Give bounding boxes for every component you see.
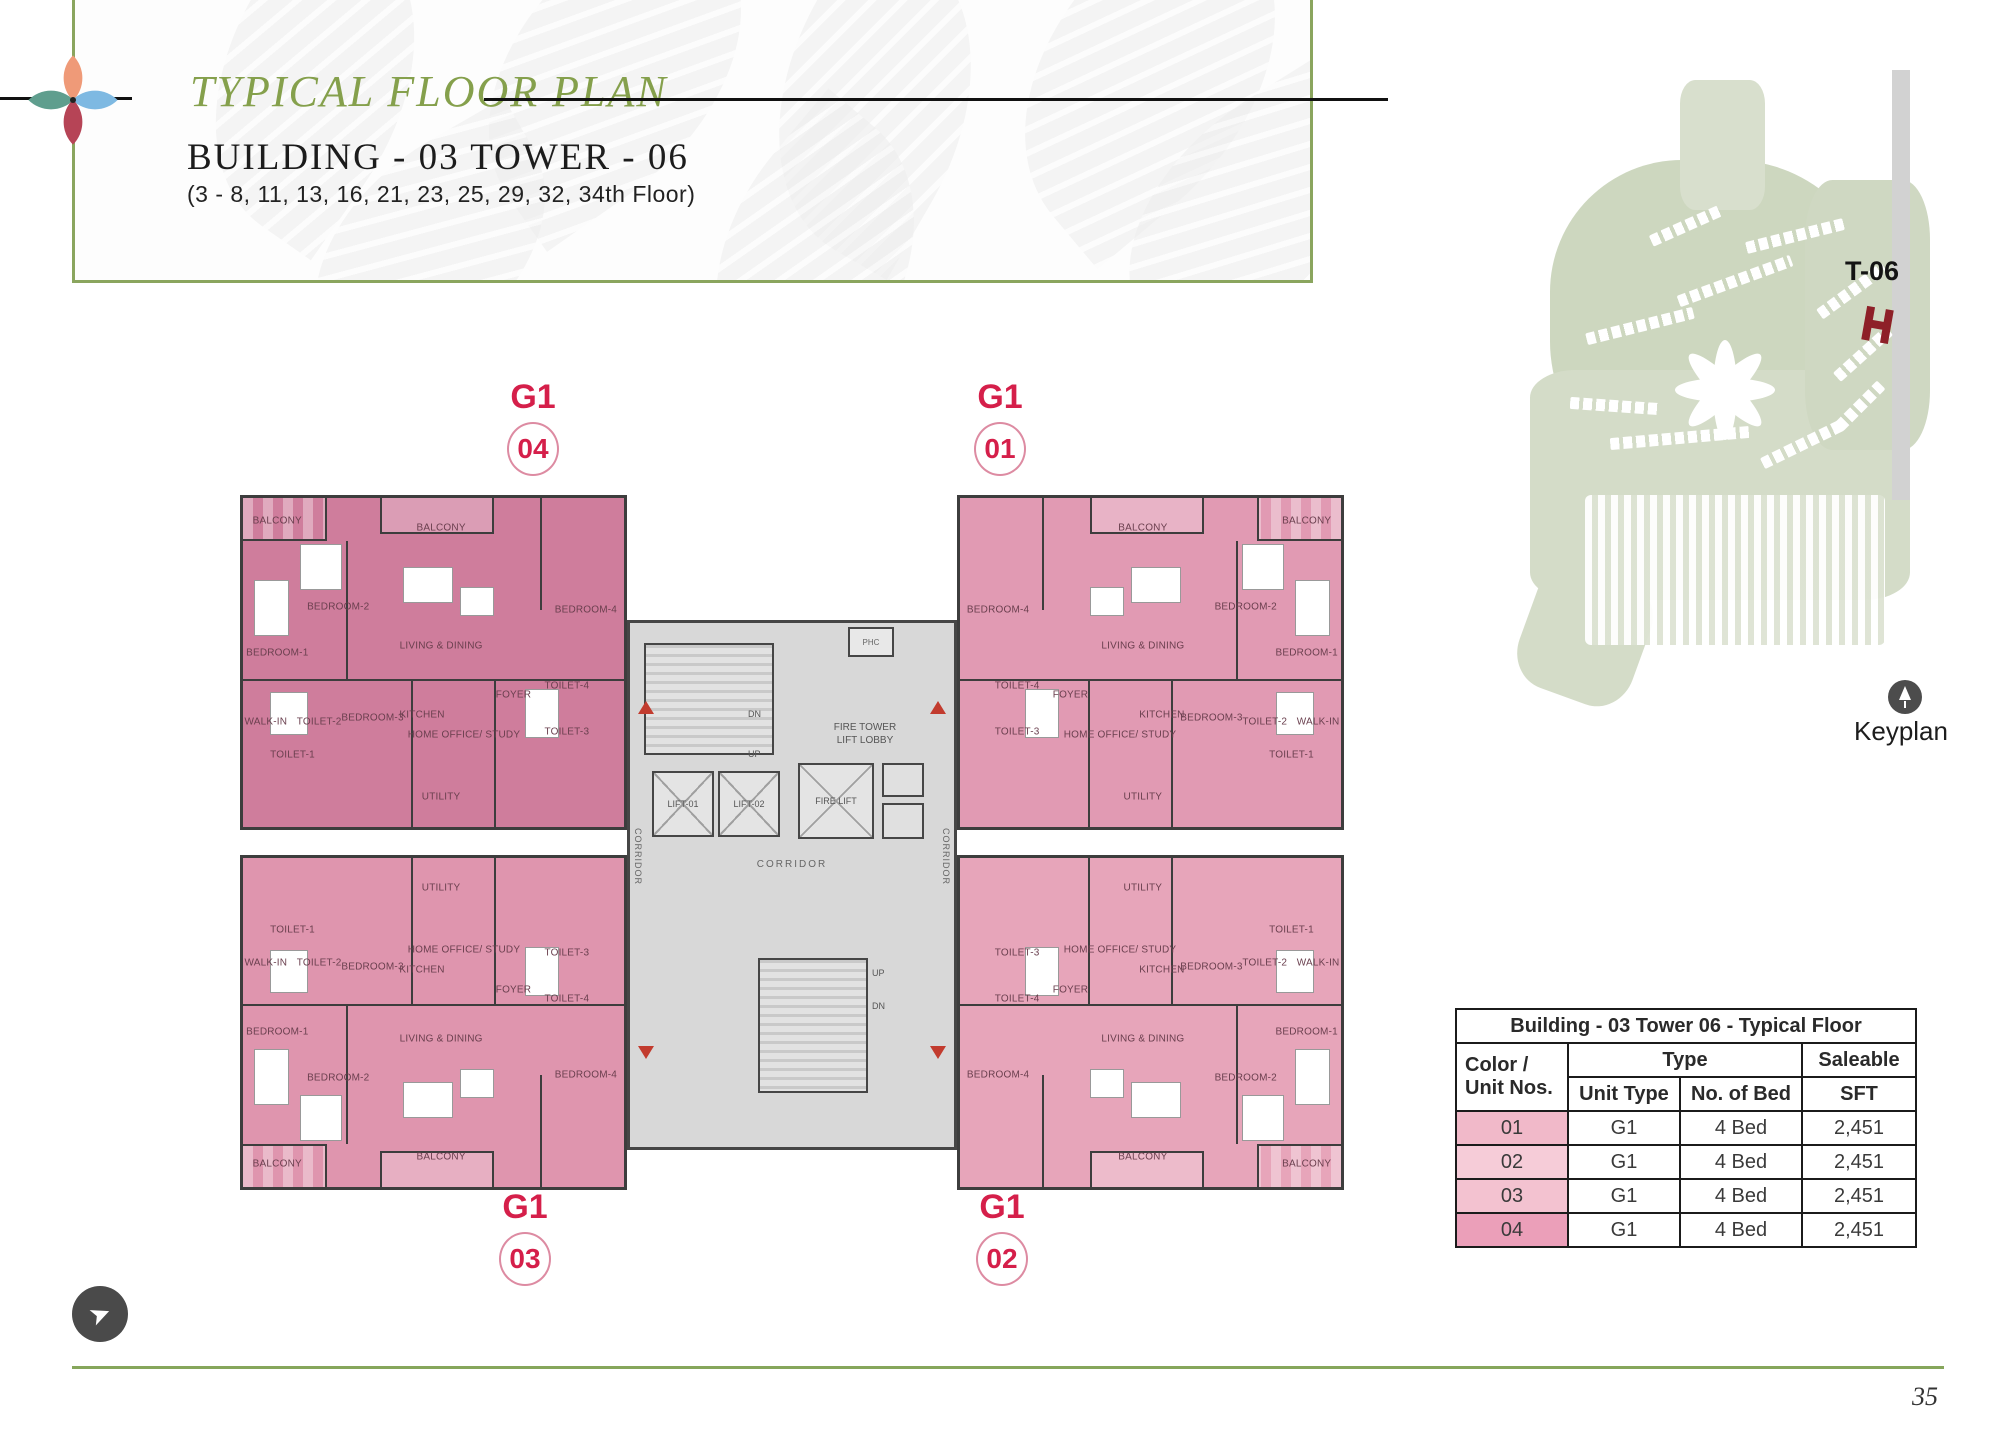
- unit-tag-02: G1 02: [932, 1190, 1072, 1286]
- room-label: TOILET-1: [270, 925, 315, 936]
- brand-logo: [33, 60, 113, 140]
- keyplan-parking: [1585, 495, 1885, 645]
- unit-summary-table: Building - 03 Tower 06 - Typical Floor C…: [1455, 1008, 1917, 1248]
- col-header-saleable: Saleable: [1802, 1043, 1916, 1077]
- col-header-sft: SFT: [1802, 1077, 1916, 1111]
- room-label: TOILET-2: [297, 716, 342, 727]
- cell-sft: 2,451: [1802, 1213, 1916, 1247]
- entry-arrow: [930, 701, 946, 714]
- unit-02-plan: BALCONYBEDROOM-2BALCONYLIVING & DININGBE…: [957, 855, 1344, 1190]
- room-label: HOME OFFICE/ STUDY: [1064, 729, 1177, 740]
- room-label: BALCONY: [417, 522, 466, 533]
- room-label: BEDROOM-2: [1215, 1073, 1277, 1084]
- unit-number: 02: [986, 1243, 1017, 1275]
- corridor-label-right: CORRIDOR: [941, 828, 951, 885]
- unit-number: 03: [509, 1243, 540, 1275]
- cell-no-of-bed: 4 Bed: [1680, 1111, 1802, 1145]
- entry-arrow: [638, 701, 654, 714]
- corridor-label-left: CORRIDOR: [633, 828, 643, 885]
- room-label: TOILET-4: [544, 680, 589, 691]
- stair-up-label: UP: [872, 968, 885, 978]
- entry-arrow: [638, 1046, 654, 1059]
- north-compass-icon: [1888, 680, 1922, 714]
- room-label: UTILITY: [422, 792, 461, 803]
- room-label: BEDROOM-3: [1180, 713, 1242, 724]
- unit-color-swatch: 01: [1456, 1111, 1568, 1145]
- unit-number-badge: 04: [507, 422, 559, 476]
- lift-02: LIFT-02: [718, 771, 780, 837]
- unit-color-swatch: 03: [1456, 1179, 1568, 1213]
- unit-tag-03: G1 03: [455, 1190, 595, 1286]
- room-label: BEDROOM-4: [555, 604, 617, 615]
- unit-room-labels: BALCONYBEDROOM-2BALCONYLIVING & DININGBE…: [243, 858, 624, 1187]
- room-label: UTILITY: [1124, 882, 1163, 893]
- room-label: KITCHEN: [1139, 964, 1184, 975]
- phc-room: PHC: [848, 627, 894, 657]
- room-label: HOME OFFICE/ STUDY: [408, 945, 521, 956]
- unit-tag-04: G1 04: [463, 380, 603, 476]
- paper-plane-icon: ➤: [85, 1298, 115, 1330]
- room-label: BEDROOM-1: [246, 1027, 308, 1038]
- unit-type-label: G1: [463, 380, 603, 414]
- room-label: FOYER: [1053, 690, 1088, 701]
- stair-dn-label: DN: [872, 1001, 885, 1011]
- unit-number-badge: 02: [976, 1232, 1028, 1286]
- room-label: BEDROOM-3: [341, 713, 403, 724]
- fire-lift: FIRE LIFT: [798, 763, 874, 839]
- room-label: LIVING & DINING: [400, 1033, 483, 1044]
- building-tower-subtitle: BUILDING - 03 TOWER - 06: [187, 136, 689, 179]
- room-label: TOILET-2: [1242, 716, 1287, 727]
- room-label: HOME OFFICE/ STUDY: [1064, 945, 1177, 956]
- room-label: LIVING & DINING: [400, 641, 483, 652]
- cell-sft: 2,451: [1802, 1145, 1916, 1179]
- staircase-top: [644, 643, 774, 755]
- floors-list: (3 - 8, 11, 13, 16, 21, 23, 25, 29, 32, …: [187, 181, 695, 208]
- room-label: HOME OFFICE/ STUDY: [408, 729, 521, 740]
- col-header-unit-type: Unit Type: [1568, 1077, 1680, 1111]
- room-label: BEDROOM-1: [1276, 647, 1338, 658]
- logo-center-dot: [70, 97, 76, 103]
- room-label: UTILITY: [422, 882, 461, 893]
- room-label: BALCONY: [417, 1152, 466, 1163]
- unit-color-swatch: 04: [1456, 1213, 1568, 1247]
- room-label: TOILET-2: [1242, 958, 1287, 969]
- col-header-no-of-bed: No. of Bed: [1680, 1077, 1802, 1111]
- developer-logo: ➤: [72, 1286, 128, 1342]
- service-shaft: [882, 763, 924, 797]
- room-label: FOYER: [496, 690, 531, 701]
- entry-arrow: [930, 1046, 946, 1059]
- unit-number: 04: [517, 433, 548, 465]
- col-header-color-unit: Color /Unit Nos.: [1456, 1043, 1568, 1111]
- room-label: BEDROOM-2: [307, 601, 369, 612]
- cell-no-of-bed: 4 Bed: [1680, 1145, 1802, 1179]
- room-label: BEDROOM-1: [246, 647, 308, 658]
- cell-unit-type: G1: [1568, 1111, 1680, 1145]
- page-number: 35: [1912, 1382, 1938, 1412]
- room-label: BALCONY: [1118, 522, 1167, 533]
- cell-unit-type: G1: [1568, 1179, 1680, 1213]
- unit-04-plan: BALCONYBEDROOM-2BALCONYLIVING & DININGBE…: [240, 495, 627, 830]
- room-label: BALCONY: [1282, 516, 1331, 527]
- lift-01: LIFT-01: [652, 771, 714, 837]
- room-label: WALK-IN: [1297, 958, 1340, 969]
- corridor-label: CORRIDOR: [630, 859, 954, 870]
- fire-tower-lobby-label: FIRE TOWERLIFT LOBBY: [800, 721, 930, 747]
- room-label: KITCHEN: [399, 964, 444, 975]
- room-label: TOILET-3: [544, 948, 589, 959]
- unit-number-badge: 01: [974, 422, 1026, 476]
- service-shaft: [882, 803, 924, 839]
- col-header-type: Type: [1568, 1043, 1802, 1077]
- staircase-bottom: [758, 958, 868, 1093]
- room-label: BEDROOM-2: [1215, 601, 1277, 612]
- room-label: FOYER: [1053, 984, 1088, 995]
- page-title: TYPICAL FLOOR PLAN: [190, 66, 668, 117]
- unit-number-badge: 03: [499, 1232, 551, 1286]
- cell-unit-type: G1: [1568, 1145, 1680, 1179]
- room-label: LIVING & DINING: [1101, 641, 1184, 652]
- room-label: TOILET-4: [995, 994, 1040, 1005]
- room-label: TOILET-3: [995, 948, 1040, 959]
- unit-color-swatch: 02: [1456, 1145, 1568, 1179]
- unit-type-label: G1: [930, 380, 1070, 414]
- unit-room-labels: BALCONYBEDROOM-2BALCONYLIVING & DININGBE…: [960, 858, 1341, 1187]
- room-label: BEDROOM-3: [1180, 961, 1242, 972]
- table-row: 04G14 Bed2,451: [1456, 1213, 1916, 1247]
- room-label: TOILET-4: [544, 994, 589, 1005]
- footer-rule: [72, 1366, 1944, 1369]
- room-label: BEDROOM-3: [341, 961, 403, 972]
- room-label: BALCONY: [253, 516, 302, 527]
- keyplan-caption: Keyplan: [1841, 716, 1961, 747]
- unit-type-label: G1: [455, 1190, 595, 1224]
- room-label: TOILET-2: [297, 958, 342, 969]
- room-label: WALK-IN: [245, 958, 288, 969]
- room-label: WALK-IN: [245, 716, 288, 727]
- table-row: 02G14 Bed2,451: [1456, 1145, 1916, 1179]
- cell-no-of-bed: 4 Bed: [1680, 1213, 1802, 1247]
- keyplan-map: T-06 Keyplan: [1530, 70, 1950, 760]
- floor-plan: G1 04 G1 01 G1 03 G1 02 BALCONYBEDROOM-2…: [230, 380, 1365, 1295]
- cell-sft: 2,451: [1802, 1179, 1916, 1213]
- unit-tag-01: G1 01: [930, 380, 1070, 476]
- room-label: TOILET-4: [995, 680, 1040, 691]
- room-label: KITCHEN: [1139, 710, 1184, 721]
- unit-03-plan: BALCONYBEDROOM-2BALCONYLIVING & DININGBE…: [240, 855, 627, 1190]
- room-label: BALCONY: [253, 1158, 302, 1169]
- room-label: WALK-IN: [1297, 716, 1340, 727]
- room-label: UTILITY: [1124, 792, 1163, 803]
- room-label: TOILET-3: [995, 726, 1040, 737]
- room-label: BEDROOM-4: [967, 1070, 1029, 1081]
- room-label: BEDROOM-4: [967, 604, 1029, 615]
- room-label: KITCHEN: [399, 710, 444, 721]
- room-label: BEDROOM-4: [555, 1070, 617, 1081]
- stair-dn-label: DN: [748, 709, 761, 719]
- lift-core: DN UP PHC FIRE TOWERLIFT LOBBY LIFT-01 L…: [627, 620, 957, 1150]
- room-label: BEDROOM-1: [1276, 1027, 1338, 1038]
- unit-room-labels: BALCONYBEDROOM-2BALCONYLIVING & DININGBE…: [243, 498, 624, 827]
- room-label: BALCONY: [1118, 1152, 1167, 1163]
- title-rule-right: [484, 98, 1388, 101]
- keyplan-landmass: [1680, 80, 1765, 210]
- room-label: LIVING & DINING: [1101, 1033, 1184, 1044]
- room-label: BEDROOM-2: [307, 1073, 369, 1084]
- room-label: TOILET-1: [1269, 925, 1314, 936]
- unit-room-labels: BALCONYBEDROOM-2BALCONYLIVING & DININGBE…: [960, 498, 1341, 827]
- cell-no-of-bed: 4 Bed: [1680, 1179, 1802, 1213]
- header-box: TYPICAL FLOOR PLAN BUILDING - 03 TOWER -…: [72, 0, 1313, 283]
- keyplan-tower-marker: [1861, 306, 1894, 344]
- unit-number: 01: [984, 433, 1015, 465]
- room-label: BALCONY: [1282, 1158, 1331, 1169]
- table-row: 01G14 Bed2,451: [1456, 1111, 1916, 1145]
- room-label: TOILET-1: [270, 749, 315, 760]
- unit-type-label: G1: [932, 1190, 1072, 1224]
- keyplan-tower-label: T-06: [1845, 256, 1899, 287]
- stair-up-label: UP: [748, 749, 761, 759]
- table-row: 03G14 Bed2,451: [1456, 1179, 1916, 1213]
- unit-01-plan: BALCONYBEDROOM-2BALCONYLIVING & DININGBE…: [957, 495, 1344, 830]
- room-label: TOILET-3: [544, 726, 589, 737]
- table-title: Building - 03 Tower 06 - Typical Floor: [1456, 1009, 1916, 1043]
- cell-unit-type: G1: [1568, 1213, 1680, 1247]
- room-label: TOILET-1: [1269, 749, 1314, 760]
- cell-sft: 2,451: [1802, 1111, 1916, 1145]
- room-label: FOYER: [496, 984, 531, 995]
